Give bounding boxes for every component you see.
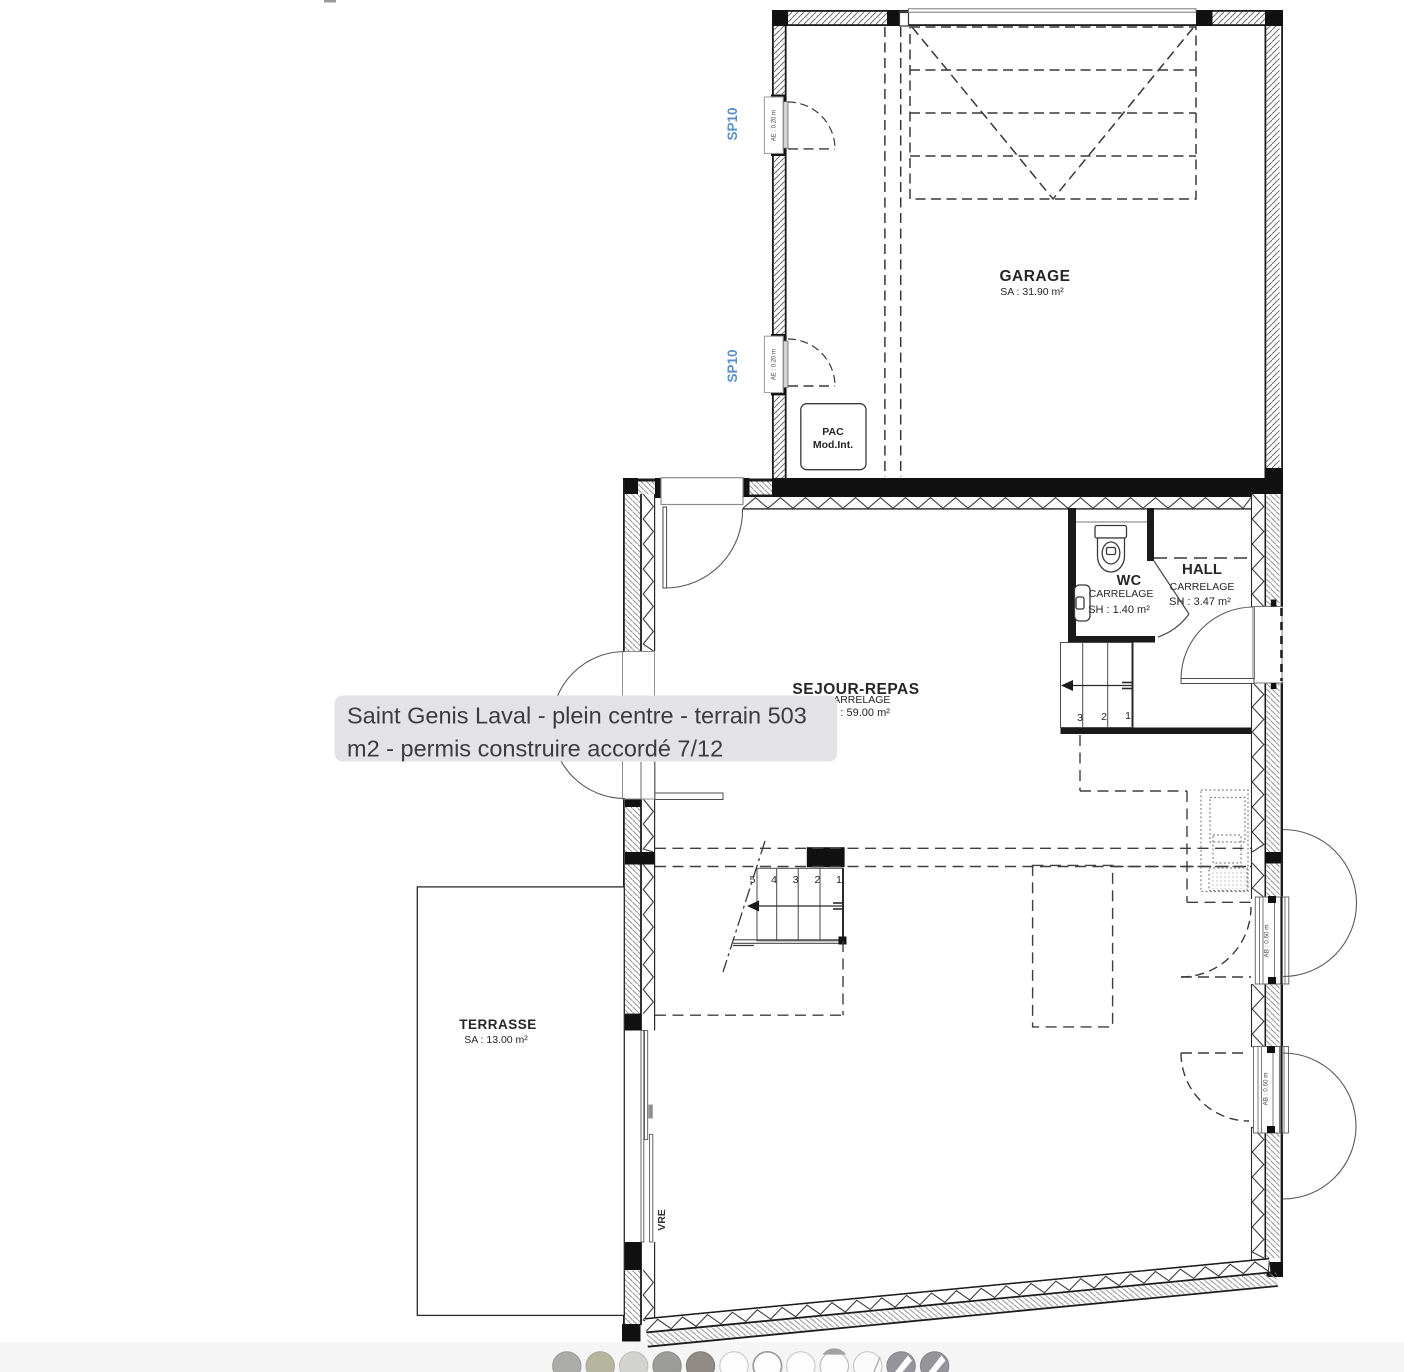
svg-text:SP10: SP10	[725, 107, 740, 140]
svg-text:TERRASSE: TERRASSE	[459, 1017, 537, 1032]
svg-text:Mod.Int.: Mod.Int.	[813, 439, 853, 451]
svg-text:1: 1	[1125, 710, 1131, 722]
svg-text:3: 3	[793, 874, 799, 886]
svg-text:m2 - permis construire accordé: m2 - permis construire accordé 7/12	[347, 736, 723, 762]
svg-text:SH : 3.47 m²: SH : 3.47 m²	[1169, 596, 1231, 608]
svg-text:1: 1	[836, 874, 842, 886]
svg-text:HALL: HALL	[1182, 561, 1222, 578]
svg-text:CARRELAGE: CARRELAGE	[1089, 588, 1154, 600]
svg-text:WC: WC	[1117, 573, 1142, 589]
svg-text:PAC: PAC	[822, 426, 844, 438]
svg-text:SA : 31.90 m²: SA : 31.90 m²	[1000, 286, 1064, 298]
svg-text:CARRELAGE: CARRELAGE	[1170, 581, 1235, 593]
svg-text:SH : 1.40 m²: SH : 1.40 m²	[1088, 604, 1150, 616]
svg-text:4: 4	[771, 874, 777, 886]
svg-text:2: 2	[1101, 711, 1107, 723]
svg-text:AE : 0.20 m: AE : 0.20 m	[772, 349, 778, 380]
svg-text:AE : 0.20 m: AE : 0.20 m	[772, 110, 778, 141]
svg-text:2: 2	[814, 874, 820, 886]
svg-text:3: 3	[1077, 712, 1083, 724]
svg-text:AB : 0.60 m: AB : 0.60 m	[1263, 1073, 1270, 1106]
svg-text:SA : 13.00 m²: SA : 13.00 m²	[464, 1034, 528, 1046]
svg-text:SP10: SP10	[725, 349, 740, 382]
svg-text:GARAGE: GARAGE	[999, 268, 1070, 285]
svg-text:AB : 0.60 m: AB : 0.60 m	[1264, 925, 1271, 958]
svg-text:VRE: VRE	[656, 1209, 668, 1231]
svg-text:Saint Genis Laval - plein cent: Saint Genis Laval - plein centre - terra…	[347, 703, 807, 729]
